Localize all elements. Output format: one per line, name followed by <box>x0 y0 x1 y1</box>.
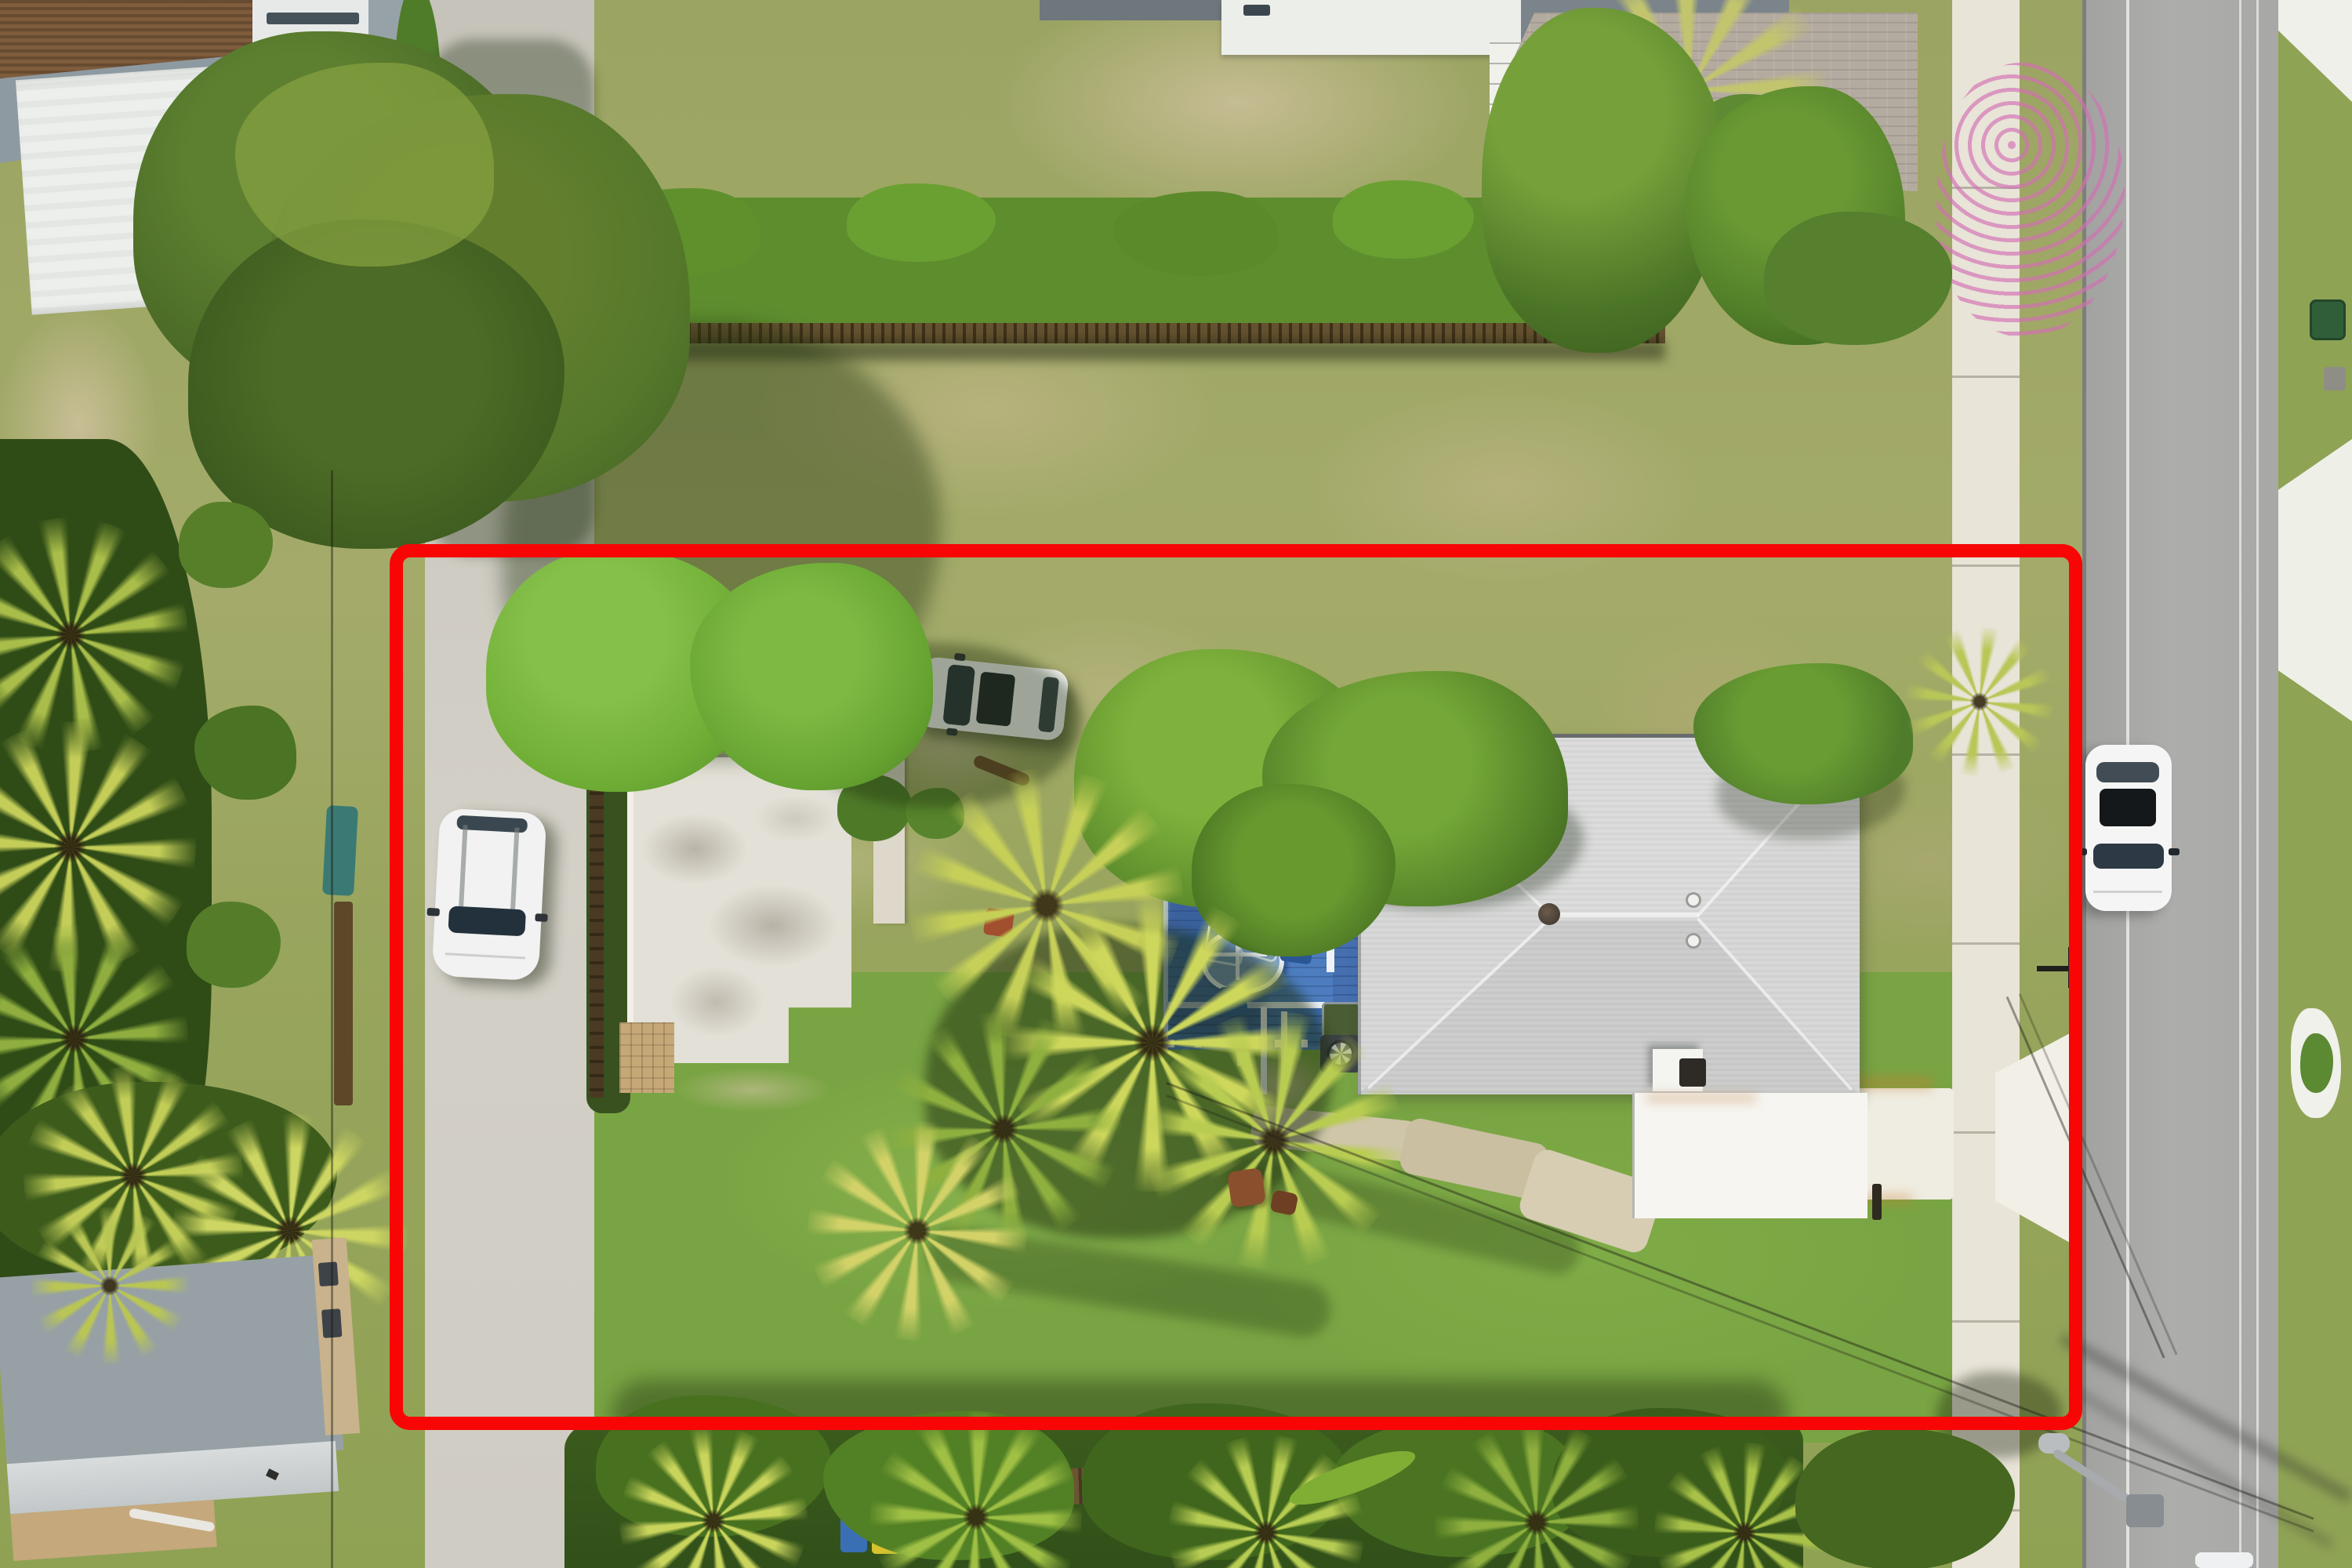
sedan-mirror-left <box>2076 848 2087 855</box>
roof-vent-white-2 <box>1686 933 1701 949</box>
garage-fence-strip <box>590 753 604 1098</box>
addition-roof <box>1632 1093 1867 1218</box>
streetside-jungle <box>1795 1428 2015 1568</box>
far-verge <box>2278 0 2352 1568</box>
street-lane-line-double-2 <box>2256 0 2259 1568</box>
pole-transformer <box>2126 1494 2164 1527</box>
alley-wire-vertical <box>331 470 333 1568</box>
neighbor-window-slot-1 <box>267 13 359 24</box>
roof-main-ridge <box>1548 913 1699 917</box>
lawn-chair-brown <box>1227 1167 1266 1208</box>
north-house-roof-a <box>1040 0 1221 20</box>
sedan-street <box>2085 745 2172 911</box>
sedan-hood-seam <box>2093 891 2162 893</box>
west-fence-piece <box>334 902 353 1105</box>
car-sliver-bottom <box>2195 1552 2253 1568</box>
sedan-sunroof <box>2100 789 2156 826</box>
roof-vent-white-1 <box>1686 892 1701 908</box>
sedan-windshield <box>2093 844 2164 869</box>
green-trash-bin <box>2310 299 2346 340</box>
gable-palm-over-roof <box>31 1207 188 1364</box>
teal-object <box>322 805 358 896</box>
pole-shadow-t-stub <box>2068 947 2074 988</box>
suv-windshield <box>448 906 526 936</box>
suv-roof-rail-left <box>459 825 467 906</box>
gable-window-1 <box>318 1261 339 1287</box>
sedan-rear-glass <box>2096 762 2159 782</box>
roof-chimney-flue <box>1679 1058 1706 1087</box>
suv-mirror-right <box>535 913 548 922</box>
roof-vent-dark <box>1538 903 1560 925</box>
north-house-door-slot <box>1243 5 1270 16</box>
yard-post <box>1872 1184 1882 1220</box>
addition-rust-streak <box>1646 1094 1756 1102</box>
suv-roof-rail-right <box>510 828 519 909</box>
sedan-mirror-right <box>2169 848 2180 855</box>
suv-mirror-left <box>426 908 440 916</box>
aerial-photo-scene <box>0 0 2352 1568</box>
walk-rust-stain-1 <box>1847 1077 1933 1088</box>
center-palm-3 <box>1145 1011 1403 1270</box>
gray-utility-box <box>2324 367 2346 390</box>
verge-palm <box>1905 627 2054 776</box>
suv-alley <box>431 808 546 982</box>
street-lane-line-double-1 <box>2239 0 2241 1568</box>
suv-hood-seam <box>445 953 525 959</box>
center-palm-5 <box>808 1121 1027 1341</box>
garage-south-mulch <box>643 1058 862 1121</box>
